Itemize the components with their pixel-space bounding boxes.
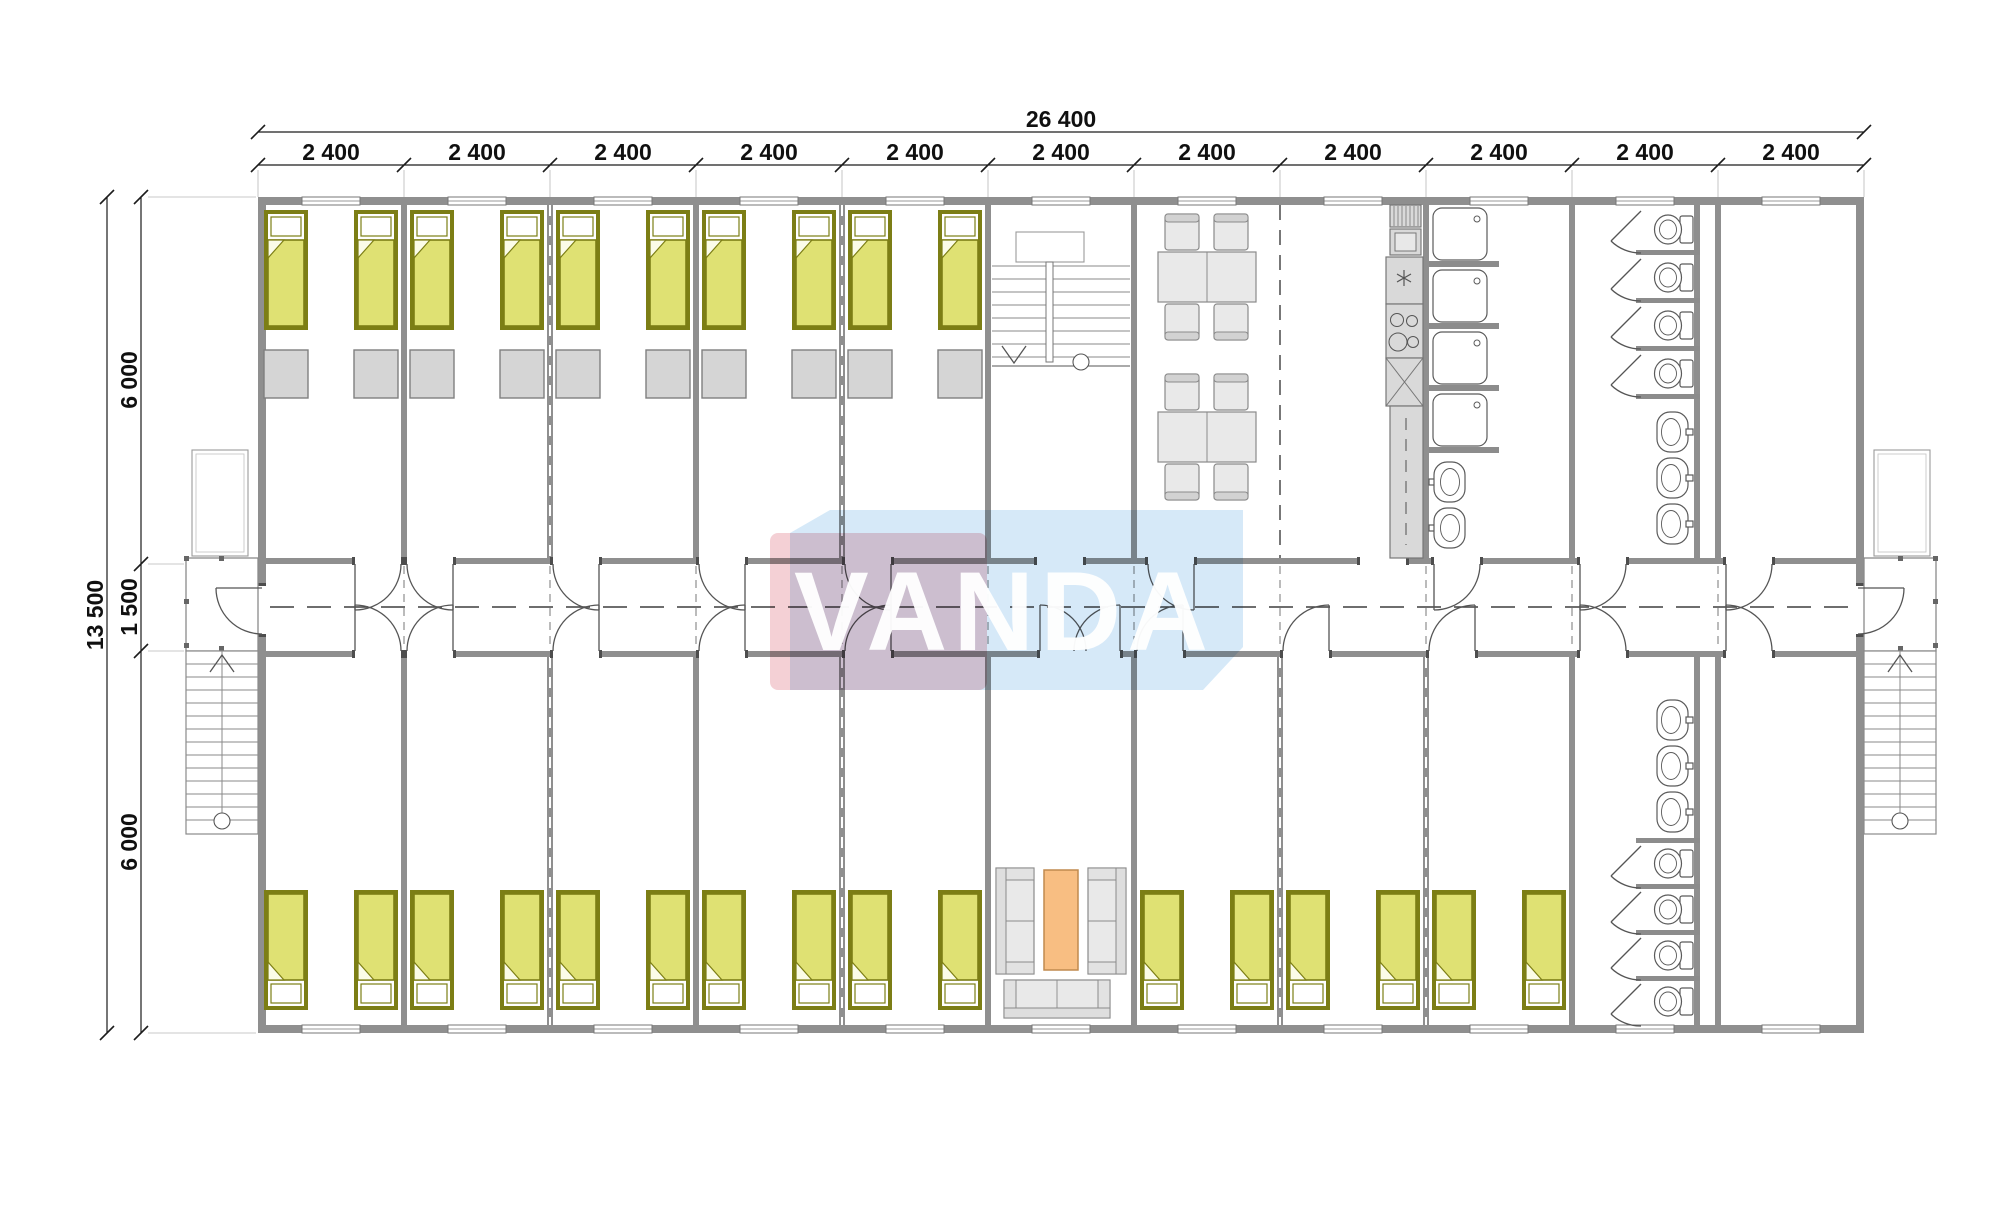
dim-label-total-height: 13 500 xyxy=(82,580,108,650)
dining-table xyxy=(1158,412,1256,462)
bed xyxy=(704,892,744,1008)
washbasin xyxy=(1429,508,1465,548)
stall-partition xyxy=(1636,346,1700,351)
bed xyxy=(794,212,834,328)
door-jamb xyxy=(1357,557,1360,565)
door-jamb xyxy=(453,557,456,565)
stall-partition xyxy=(1636,930,1700,935)
door xyxy=(1580,605,1626,651)
bed xyxy=(412,892,452,1008)
window xyxy=(1178,197,1236,205)
window xyxy=(448,197,506,205)
exterior-stair-right xyxy=(1864,450,1938,834)
stall-partition xyxy=(1636,250,1700,255)
dining-chair xyxy=(1165,214,1199,250)
bed xyxy=(502,212,542,328)
washbasin xyxy=(1657,700,1693,740)
bed xyxy=(794,892,834,1008)
door-jamb xyxy=(1772,557,1775,565)
stall-door xyxy=(1611,259,1641,301)
door xyxy=(355,605,401,651)
bed xyxy=(940,892,980,1008)
shower xyxy=(1433,394,1487,446)
stall-partition xyxy=(1636,298,1700,303)
window xyxy=(1178,1025,1236,1033)
bed xyxy=(704,212,744,328)
bed xyxy=(850,892,890,1008)
bed xyxy=(648,212,688,328)
bed xyxy=(356,212,396,328)
dining-chair xyxy=(1165,374,1199,410)
wardrobe xyxy=(702,350,746,398)
door-opening xyxy=(1856,586,1864,634)
bed xyxy=(412,212,452,328)
wardrobe xyxy=(792,350,836,398)
dim-label-module: 2 400 xyxy=(1032,139,1090,165)
stall-door xyxy=(1611,984,1641,1026)
wardrobe xyxy=(646,350,690,398)
bed xyxy=(940,212,980,328)
door-opening xyxy=(1726,557,1772,565)
wardrobe xyxy=(500,350,544,398)
toilet xyxy=(1655,263,1694,292)
window xyxy=(1762,1025,1820,1033)
window xyxy=(302,197,360,205)
door-jamb xyxy=(404,650,407,658)
door-jamb xyxy=(1856,583,1864,586)
stall-door xyxy=(1611,846,1641,888)
dim-label-module: 2 400 xyxy=(1762,139,1820,165)
sofa xyxy=(1004,980,1110,1018)
window xyxy=(740,1025,798,1033)
window xyxy=(1032,197,1090,205)
door-jamb xyxy=(401,650,404,658)
door-jamb xyxy=(258,583,266,586)
partition-wall xyxy=(1569,205,1575,558)
door-jamb xyxy=(599,557,602,565)
exterior-stair-left xyxy=(184,450,258,834)
window xyxy=(594,197,652,205)
partition-wall xyxy=(1131,205,1137,558)
window xyxy=(1324,1025,1382,1033)
door xyxy=(1283,605,1329,651)
bed xyxy=(1288,892,1328,1008)
bed xyxy=(1524,892,1564,1008)
vanda-logo: VANDA xyxy=(770,510,1243,690)
dim-label-module: 2 400 xyxy=(302,139,360,165)
shower xyxy=(1433,332,1487,384)
window xyxy=(1470,1025,1528,1033)
door-opening xyxy=(1434,557,1480,565)
partition-wall xyxy=(985,205,991,558)
stall-door xyxy=(1611,355,1641,397)
bed xyxy=(558,212,598,328)
dim-label-height-mid: 1 500 xyxy=(116,578,142,636)
door-opening xyxy=(1726,650,1772,658)
dim-label-total-width: 26 400 xyxy=(1026,106,1096,132)
wall xyxy=(1694,205,1700,558)
door-jamb xyxy=(745,650,748,658)
door-opening xyxy=(699,557,745,565)
dim-label-height-top: 6 000 xyxy=(116,351,142,409)
stall-partition xyxy=(1636,394,1700,399)
toilet xyxy=(1655,941,1694,970)
door xyxy=(355,564,401,610)
door xyxy=(1726,605,1772,651)
door xyxy=(1726,564,1772,610)
door-jamb xyxy=(401,557,404,565)
bed xyxy=(266,892,306,1008)
door xyxy=(553,605,599,651)
dim-label-module: 2 400 xyxy=(1324,139,1382,165)
door-opening xyxy=(355,557,401,565)
shower xyxy=(1433,270,1487,322)
wardrobe xyxy=(938,350,982,398)
stall-door xyxy=(1611,892,1641,934)
door-opening xyxy=(553,650,599,658)
stall-door xyxy=(1611,938,1641,980)
dining-chair xyxy=(1165,464,1199,500)
door-opening xyxy=(407,557,453,565)
partition-wall xyxy=(1715,657,1721,1025)
door-opening xyxy=(699,650,745,658)
stall-partition xyxy=(1636,884,1700,889)
dining-chair xyxy=(1214,214,1248,250)
blueprint-canvas: 26 400 2 400 2 400 2 400 2 400 2 400 2 4… xyxy=(0,0,2000,1215)
logo-text: VANDA xyxy=(794,549,1214,674)
bed xyxy=(1232,892,1272,1008)
coffee-table xyxy=(1044,870,1078,970)
door-opening xyxy=(553,557,599,565)
door-jamb xyxy=(352,557,355,565)
door-jamb xyxy=(1626,650,1629,658)
door-jamb xyxy=(1475,650,1478,658)
bed xyxy=(502,892,542,1008)
dining-chair xyxy=(1165,304,1199,340)
sofa xyxy=(996,868,1034,974)
door-jamb xyxy=(1577,650,1580,658)
toilet xyxy=(1655,987,1694,1016)
washbasin xyxy=(1429,462,1465,502)
partition-wall xyxy=(401,205,407,558)
toilet xyxy=(1655,359,1694,388)
dim-label-module: 2 400 xyxy=(1470,139,1528,165)
door-opening xyxy=(355,650,401,658)
door-jamb xyxy=(1577,557,1580,565)
partition-wall xyxy=(401,657,407,1025)
washbasin xyxy=(1657,412,1693,452)
window xyxy=(1616,197,1674,205)
door-jamb xyxy=(1626,557,1629,565)
door xyxy=(699,564,745,610)
door-jamb xyxy=(1280,650,1283,658)
wardrobe xyxy=(354,350,398,398)
door xyxy=(1429,605,1475,651)
window xyxy=(448,1025,506,1033)
door xyxy=(407,564,453,610)
door-jamb xyxy=(745,557,748,565)
dim-label-module: 2 400 xyxy=(1616,139,1674,165)
stall-door xyxy=(1611,307,1641,349)
shower-divider xyxy=(1429,323,1499,329)
door-opening xyxy=(1580,650,1626,658)
door xyxy=(699,605,745,651)
partition-wall xyxy=(985,657,991,1025)
window xyxy=(1470,197,1528,205)
door-jamb xyxy=(696,557,699,565)
door xyxy=(1580,564,1626,610)
door-jamb xyxy=(352,650,355,658)
bed xyxy=(1142,892,1182,1008)
door-jamb xyxy=(1426,650,1429,658)
door xyxy=(553,564,599,610)
bed xyxy=(1378,892,1418,1008)
window xyxy=(886,197,944,205)
door-jamb xyxy=(696,650,699,658)
dim-label-module: 2 400 xyxy=(594,139,652,165)
dining-chair xyxy=(1214,374,1248,410)
washbasin xyxy=(1657,746,1693,786)
stall-door xyxy=(1611,211,1641,253)
dim-label-module: 2 400 xyxy=(1178,139,1236,165)
bed xyxy=(648,892,688,1008)
dim-label-height-bottom: 6 000 xyxy=(116,813,142,871)
wardrobe xyxy=(848,350,892,398)
window xyxy=(1762,197,1820,205)
toilet xyxy=(1655,849,1694,878)
door-opening xyxy=(1429,650,1475,658)
wardrobe xyxy=(264,350,308,398)
door-opening xyxy=(258,586,266,634)
bed xyxy=(558,892,598,1008)
window xyxy=(1616,1025,1674,1033)
toilet xyxy=(1655,311,1694,340)
door-jamb xyxy=(1431,557,1434,565)
dining-chair xyxy=(1214,304,1248,340)
door-jamb xyxy=(1723,650,1726,658)
washbasin xyxy=(1657,792,1693,832)
interior-staircase xyxy=(992,232,1130,370)
door-jamb xyxy=(1329,650,1332,658)
shower-divider xyxy=(1429,385,1499,391)
door-opening xyxy=(1283,650,1329,658)
shower xyxy=(1433,208,1487,260)
lounge-area xyxy=(996,868,1126,1018)
washbasin xyxy=(1657,458,1693,498)
shower-divider xyxy=(1429,447,1499,453)
stall-partition xyxy=(1636,838,1700,843)
window xyxy=(1324,197,1382,205)
stall-partition xyxy=(1636,976,1700,981)
dim-label-module: 2 400 xyxy=(886,139,944,165)
toilet xyxy=(1655,895,1694,924)
stove xyxy=(1386,304,1423,358)
window xyxy=(740,197,798,205)
partition-wall xyxy=(1131,657,1137,1025)
door xyxy=(1434,564,1480,610)
partition-wall xyxy=(1569,657,1575,1025)
window xyxy=(886,1025,944,1033)
kitchen-strip xyxy=(1386,205,1423,558)
door xyxy=(407,605,453,651)
partition-wall xyxy=(1715,205,1721,558)
door-jamb xyxy=(453,650,456,658)
floor-plan: 26 400 2 400 2 400 2 400 2 400 2 400 2 4… xyxy=(0,0,2000,1215)
shower-divider xyxy=(1429,261,1499,267)
door-jamb xyxy=(1480,557,1483,565)
wardrobe xyxy=(556,350,600,398)
window xyxy=(1032,1025,1090,1033)
dim-label-module: 2 400 xyxy=(448,139,506,165)
door-opening xyxy=(407,650,453,658)
partition-wall xyxy=(1423,205,1429,558)
door-jamb xyxy=(1723,557,1726,565)
door-jamb xyxy=(550,557,553,565)
bed xyxy=(356,892,396,1008)
dining-area xyxy=(1158,214,1256,500)
door-jamb xyxy=(404,557,407,565)
door-opening xyxy=(1580,557,1626,565)
door-jamb xyxy=(599,650,602,658)
door-jamb xyxy=(550,650,553,658)
window xyxy=(302,1025,360,1033)
partition-wall xyxy=(693,657,699,1025)
dim-label-module: 2 400 xyxy=(740,139,798,165)
toilet xyxy=(1655,215,1694,244)
dining-table xyxy=(1158,252,1256,302)
door-jamb xyxy=(1772,650,1775,658)
partition-wall xyxy=(693,205,699,558)
sofa xyxy=(1088,868,1126,974)
washbasin xyxy=(1657,504,1693,544)
dining-chair xyxy=(1214,464,1248,500)
bed xyxy=(850,212,890,328)
window xyxy=(594,1025,652,1033)
bed xyxy=(266,212,306,328)
wardrobe xyxy=(410,350,454,398)
bed xyxy=(1434,892,1474,1008)
